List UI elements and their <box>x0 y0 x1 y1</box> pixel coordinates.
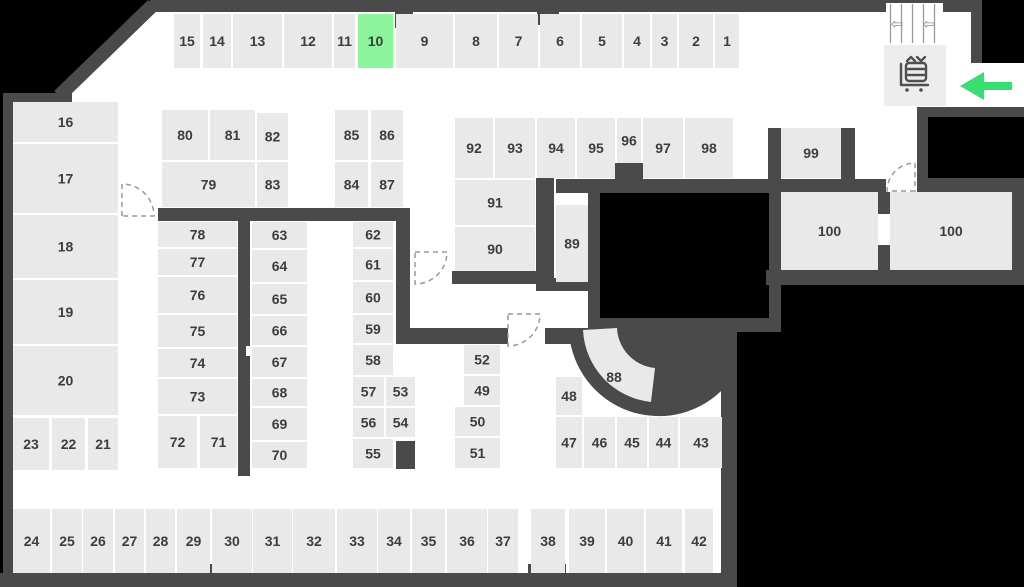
room-12: 12 <box>284 14 332 68</box>
room-81: 81 <box>210 110 255 160</box>
room-62-label: 62 <box>365 227 381 243</box>
room-96: 96 <box>617 118 641 163</box>
room-79-label: 79 <box>201 177 217 193</box>
floor-plan-map: 1514131211109876543211617181920232221808… <box>0 0 1024 587</box>
room-1: 1 <box>715 14 739 68</box>
room-65: 65 <box>252 284 307 314</box>
room-30-label: 30 <box>224 533 240 549</box>
room-61: 61 <box>353 249 393 280</box>
cart-room <box>884 45 946 106</box>
room-48: 48 <box>556 377 582 415</box>
room-15: 15 <box>174 14 200 68</box>
room-70-label: 70 <box>272 447 288 463</box>
room-100-label: 100 <box>818 223 842 239</box>
room-3-label: 3 <box>661 33 669 49</box>
room-66-label: 66 <box>272 323 288 339</box>
room-16: 16 <box>13 102 118 142</box>
room-90-label: 90 <box>487 241 503 257</box>
room-83-label: 83 <box>265 177 281 193</box>
room-37: 37 <box>488 509 518 573</box>
room-14-label: 14 <box>209 33 225 49</box>
room-92-label: 92 <box>466 140 482 156</box>
room-55-label: 55 <box>365 446 381 462</box>
room-88: 88 <box>606 369 622 385</box>
room-66: 66 <box>252 316 307 345</box>
room-95-label: 95 <box>588 140 604 156</box>
room-20: 20 <box>13 346 118 415</box>
room-29: 29 <box>177 509 210 573</box>
floor-plan-stage: 1514131211109876543211617181920232221808… <box>0 0 1024 587</box>
room-21-label: 21 <box>95 436 111 452</box>
room-35-label: 35 <box>421 533 437 549</box>
room-90: 90 <box>455 227 535 271</box>
room-29-label: 29 <box>186 533 202 549</box>
room-25-label: 25 <box>59 533 75 549</box>
room-55: 55 <box>353 439 393 468</box>
room-87-label: 87 <box>379 177 395 193</box>
room-33: 33 <box>337 509 377 573</box>
room-91-label: 91 <box>487 195 503 211</box>
room-97-label: 97 <box>655 140 671 156</box>
room-5-label: 5 <box>598 33 606 49</box>
room-9: 9 <box>396 14 453 68</box>
room-71-label: 71 <box>211 434 227 450</box>
room-54: 54 <box>386 408 415 437</box>
room-12-label: 12 <box>300 33 316 49</box>
room-27: 27 <box>115 509 144 573</box>
room-85: 85 <box>335 110 368 160</box>
room-6-label: 6 <box>556 33 564 49</box>
room-56: 56 <box>353 408 384 437</box>
room-23: 23 <box>13 418 49 470</box>
room-51-label: 51 <box>470 445 486 461</box>
room-85-label: 85 <box>344 127 360 143</box>
room-77-label: 77 <box>190 254 206 270</box>
room-78: 78 <box>158 222 237 247</box>
room-51: 51 <box>455 438 500 468</box>
room-17: 17 <box>13 144 118 213</box>
room-2: 2 <box>679 14 713 68</box>
room-60-label: 60 <box>365 290 381 306</box>
room-91: 91 <box>455 180 535 225</box>
room-47-label: 47 <box>561 435 577 451</box>
room-75-label: 75 <box>190 323 206 339</box>
wall-left <box>3 93 13 587</box>
room-77: 77 <box>158 249 237 275</box>
room-98-label: 98 <box>701 140 717 156</box>
room-98: 98 <box>685 118 733 178</box>
room-46: 46 <box>584 417 615 468</box>
room-40: 40 <box>607 509 644 573</box>
room-15-label: 15 <box>179 33 195 49</box>
room-14: 14 <box>203 14 231 68</box>
room-18-label: 18 <box>58 239 74 255</box>
room-73-label: 73 <box>190 389 206 405</box>
room-35: 35 <box>412 509 445 573</box>
room-86-label: 86 <box>379 127 395 143</box>
room-59-label: 59 <box>365 321 381 337</box>
room-38-label: 38 <box>540 533 556 549</box>
wall-bottom <box>0 573 737 587</box>
room-69-label: 69 <box>272 416 288 432</box>
room-9-label: 9 <box>421 33 429 49</box>
room-82: 82 <box>257 113 288 160</box>
room-54-label: 54 <box>393 415 409 431</box>
room-80: 80 <box>162 110 208 160</box>
room-17-label: 17 <box>58 171 74 187</box>
room-64: 64 <box>252 250 307 282</box>
room-39-label: 39 <box>579 533 595 549</box>
stairs-area: ⇦ ⇦ <box>886 3 943 43</box>
room-52: 52 <box>464 345 500 374</box>
room-7-label: 7 <box>515 33 523 49</box>
room-100: 100 <box>781 192 878 270</box>
room-62: 62 <box>353 222 393 247</box>
room-1-label: 1 <box>723 33 731 49</box>
room-53-label: 53 <box>393 384 409 400</box>
room-24-label: 24 <box>24 533 40 549</box>
room-10: 10 <box>358 14 393 68</box>
wall-top <box>150 0 982 12</box>
room-39: 39 <box>569 509 605 573</box>
room-4: 4 <box>624 14 650 68</box>
room-40-label: 40 <box>618 533 634 549</box>
room-94: 94 <box>537 118 575 178</box>
room-46-label: 46 <box>592 435 608 451</box>
room-72: 72 <box>158 416 197 468</box>
room-74-label: 74 <box>190 355 206 371</box>
room-100-2-label: 100 <box>939 223 963 239</box>
room-84-label: 84 <box>344 177 360 193</box>
room-68-label: 68 <box>272 385 288 401</box>
room-52-label: 52 <box>474 352 490 368</box>
room-18: 18 <box>13 215 118 278</box>
room-5: 5 <box>582 14 622 68</box>
room-45-label: 45 <box>624 435 640 451</box>
room-6: 6 <box>540 14 580 68</box>
room-58-label: 58 <box>365 352 381 368</box>
room-43: 43 <box>680 417 722 468</box>
room-58: 58 <box>353 345 393 375</box>
room-28: 28 <box>146 509 175 573</box>
room-96-label: 96 <box>621 133 637 149</box>
room-95: 95 <box>577 118 615 178</box>
room-36-label: 36 <box>459 533 475 549</box>
room-100-2: 100 <box>890 192 1012 270</box>
room-33-label: 33 <box>349 533 365 549</box>
room-79: 79 <box>162 162 255 207</box>
room-57: 57 <box>353 377 384 406</box>
room-19-label: 19 <box>58 304 74 320</box>
room-92: 92 <box>455 118 493 178</box>
room-13: 13 <box>233 14 282 68</box>
room-60: 60 <box>353 282 393 313</box>
room-76: 76 <box>158 277 237 313</box>
room-8: 8 <box>455 14 497 68</box>
room-59: 59 <box>353 315 393 343</box>
stairs-left-arrow-icon: ⇦ <box>923 15 936 33</box>
room-50-label: 50 <box>470 414 486 430</box>
room-25: 25 <box>52 509 82 573</box>
room-48-label: 48 <box>561 388 577 404</box>
room-63-label: 63 <box>272 227 288 243</box>
room-20-label: 20 <box>58 373 74 389</box>
room-82-label: 82 <box>265 129 281 145</box>
room-67: 67 <box>252 347 307 377</box>
room-26-label: 26 <box>90 533 106 549</box>
room-7: 7 <box>499 14 538 68</box>
room-69: 69 <box>252 408 307 440</box>
room-86: 86 <box>371 110 403 160</box>
room-53: 53 <box>386 377 415 406</box>
room-38: 38 <box>531 509 565 573</box>
room-68: 68 <box>252 379 307 406</box>
room-89: 89 <box>556 205 588 282</box>
room-80-label: 80 <box>177 127 193 143</box>
room-94-label: 94 <box>548 140 564 156</box>
room-99-label: 99 <box>803 145 819 161</box>
room-34-label: 34 <box>386 533 402 549</box>
room-45: 45 <box>617 417 647 468</box>
room-3: 3 <box>652 14 677 68</box>
room-72-label: 72 <box>170 434 186 450</box>
room-23-label: 23 <box>23 436 39 452</box>
room-2-label: 2 <box>692 33 700 49</box>
room-70: 70 <box>252 442 307 468</box>
room-84: 84 <box>335 162 368 207</box>
room-71: 71 <box>200 416 237 468</box>
room-67-label: 67 <box>272 354 288 370</box>
room-8-label: 8 <box>472 33 480 49</box>
room-65-label: 65 <box>272 291 288 307</box>
room-42-label: 42 <box>691 533 707 549</box>
room-81-label: 81 <box>225 127 241 143</box>
room-21: 21 <box>88 418 118 470</box>
room-34: 34 <box>378 509 410 573</box>
room-89-label: 89 <box>564 236 580 252</box>
room-61-label: 61 <box>365 257 381 273</box>
room-88-label: 88 <box>606 369 622 385</box>
room-28-label: 28 <box>153 533 169 549</box>
room-44-label: 44 <box>656 435 672 451</box>
room-56-label: 56 <box>361 415 377 431</box>
room-27-label: 27 <box>122 533 138 549</box>
room-19: 19 <box>13 280 118 344</box>
room-30: 30 <box>212 509 252 573</box>
room-42: 42 <box>685 509 713 573</box>
room-41: 41 <box>646 509 682 573</box>
room-83: 83 <box>257 162 288 207</box>
room-63: 63 <box>252 222 307 248</box>
room-32-label: 32 <box>306 533 322 549</box>
room-49: 49 <box>464 376 500 405</box>
room-47: 47 <box>556 417 582 468</box>
room-99: 99 <box>781 128 841 178</box>
room-11: 11 <box>334 14 355 68</box>
room-4-label: 4 <box>633 33 641 49</box>
room-10-label: 10 <box>368 33 384 49</box>
room-57-label: 57 <box>361 384 377 400</box>
room-22: 22 <box>52 418 85 470</box>
stairs-left-arrow-icon: ⇦ <box>891 15 904 33</box>
room-93-label: 93 <box>507 140 523 156</box>
room-16-label: 16 <box>58 114 74 130</box>
room-93: 93 <box>495 118 535 178</box>
room-36: 36 <box>447 509 487 573</box>
room-31-label: 31 <box>265 533 281 549</box>
room-78-label: 78 <box>190 227 206 243</box>
room-73: 73 <box>158 379 237 414</box>
room-87: 87 <box>371 162 403 207</box>
room-11-label: 11 <box>337 33 352 49</box>
room-41-label: 41 <box>656 533 672 549</box>
room-32: 32 <box>293 509 335 573</box>
room-37-label: 37 <box>495 533 511 549</box>
room-76-label: 76 <box>190 287 206 303</box>
room-44: 44 <box>649 417 678 468</box>
room-97: 97 <box>643 118 683 178</box>
room-26: 26 <box>83 509 113 573</box>
room-49-label: 49 <box>474 383 490 399</box>
room-22-label: 22 <box>61 436 77 452</box>
room-31: 31 <box>253 509 292 573</box>
room-13-label: 13 <box>250 33 266 49</box>
room-64-label: 64 <box>272 258 288 274</box>
room-74: 74 <box>158 349 237 377</box>
room-50: 50 <box>455 407 500 436</box>
room-75: 75 <box>158 315 237 347</box>
room-24: 24 <box>13 509 50 573</box>
room-43-label: 43 <box>693 435 709 451</box>
